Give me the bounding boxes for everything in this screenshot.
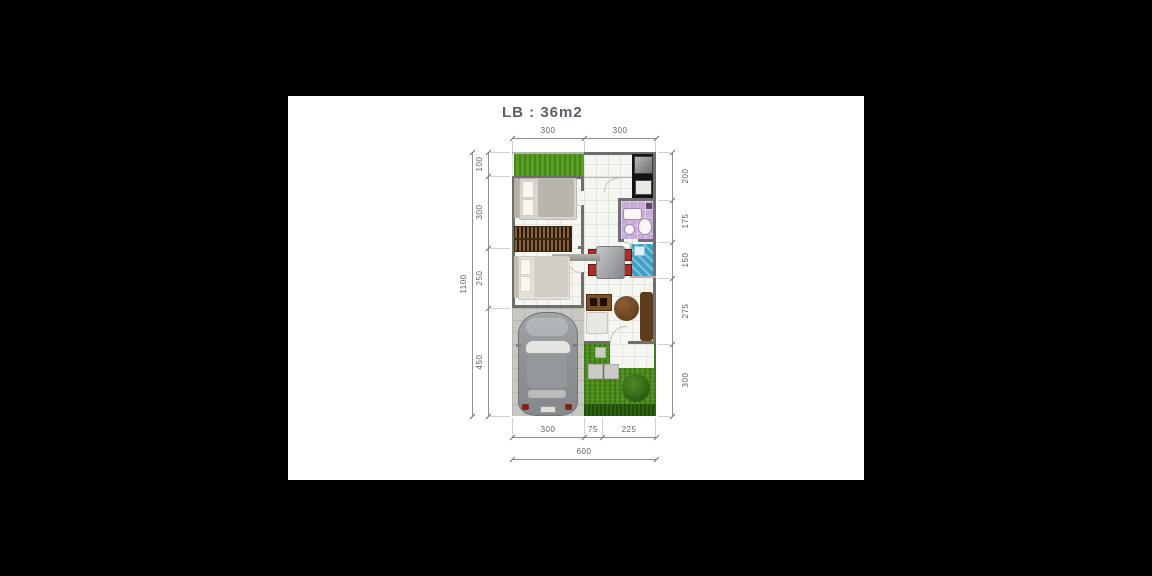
dining-table xyxy=(596,246,625,279)
wash-basin xyxy=(634,246,645,256)
bathtub xyxy=(623,208,642,220)
bed-pillow xyxy=(520,259,531,275)
dim-extension xyxy=(490,176,510,177)
dim-line-left-total xyxy=(472,152,473,416)
wall xyxy=(581,179,584,191)
dim-right-3: 150 xyxy=(681,240,691,280)
dim-left-1: 100 xyxy=(475,144,485,184)
dim-extension xyxy=(658,278,670,279)
dim-line-bottom-total xyxy=(512,459,656,460)
dim-top-2: 300 xyxy=(592,126,648,136)
side-bench xyxy=(640,292,653,341)
page-title: LB : 36m2 xyxy=(502,104,662,121)
stove xyxy=(635,180,652,195)
dim-top-1: 300 xyxy=(520,126,576,136)
shower-fitting xyxy=(646,203,652,209)
dim-extension xyxy=(655,141,656,152)
car-windshield xyxy=(525,340,571,354)
stepping-stone xyxy=(588,364,603,379)
dim-right-1: 200 xyxy=(681,156,691,196)
toilet xyxy=(638,218,652,235)
wall xyxy=(512,305,584,308)
dim-tick xyxy=(670,414,676,420)
bed-blanket xyxy=(538,179,574,217)
dim-left-2: 300 xyxy=(475,192,485,232)
wardrobe-slats xyxy=(514,226,572,239)
dim-extension xyxy=(512,418,513,437)
car-mirror xyxy=(516,344,521,347)
dim-right-5: 300 xyxy=(681,360,691,400)
garden-grass xyxy=(514,154,584,176)
wall xyxy=(630,276,656,278)
car-tail-light xyxy=(522,404,529,410)
dim-extension xyxy=(658,242,670,243)
dim-tick xyxy=(654,457,660,463)
car-mirror xyxy=(573,344,578,347)
stepping-stone xyxy=(604,364,619,379)
dim-extension xyxy=(490,152,510,153)
wall xyxy=(653,152,656,344)
floor-plan-sheet: LB : 36m2 300 300 300 75 225 600 1100 10… xyxy=(288,96,864,480)
dim-extension xyxy=(512,141,513,152)
dim-extension xyxy=(658,416,670,417)
dim-right-4: 275 xyxy=(681,291,691,331)
wardrobe-slats xyxy=(514,239,572,252)
bed-pillow xyxy=(520,276,531,292)
dim-bottom-total: 600 xyxy=(556,447,612,457)
dim-extension xyxy=(490,308,510,309)
round-chair xyxy=(614,296,639,321)
wall xyxy=(581,272,584,308)
dim-line-left xyxy=(488,152,489,416)
dim-bottom-1: 300 xyxy=(520,425,576,435)
sink xyxy=(624,224,635,235)
cabinet-drawer xyxy=(590,298,597,306)
cabinet-drawer xyxy=(600,298,607,306)
screenshot-root: { "title": "LB : 36m2", "dimensions": { … xyxy=(0,0,1152,576)
wall xyxy=(638,239,656,242)
dim-extension xyxy=(658,152,670,153)
refrigerator xyxy=(634,156,653,174)
car xyxy=(518,312,576,414)
bed-pillow xyxy=(522,199,534,216)
dim-left-total: 1100 xyxy=(459,260,469,308)
car-roof xyxy=(527,354,567,388)
dim-line-right xyxy=(672,152,673,416)
dim-extension xyxy=(584,141,585,152)
dim-extension xyxy=(490,416,510,417)
wall xyxy=(584,177,632,178)
dim-bottom-3: 225 xyxy=(601,425,657,435)
dim-extension xyxy=(658,200,670,201)
dim-tick xyxy=(470,414,476,420)
bed-blanket xyxy=(534,257,568,297)
sofa xyxy=(586,312,608,334)
wall xyxy=(581,205,584,258)
dim-left-4: 450 xyxy=(475,342,485,382)
car-license-plate xyxy=(540,406,556,413)
wall xyxy=(584,341,610,344)
car-hood xyxy=(526,318,568,336)
floor-plan xyxy=(512,152,656,416)
stepping-stone xyxy=(595,347,606,358)
bush xyxy=(622,374,650,402)
dim-extension xyxy=(658,344,670,345)
wall xyxy=(512,152,584,154)
dim-left-3: 250 xyxy=(475,258,485,298)
wall xyxy=(628,341,656,344)
dim-extension xyxy=(490,248,510,249)
hedge xyxy=(584,404,656,416)
bed-pillow xyxy=(522,181,534,198)
car-rear-window xyxy=(528,390,566,398)
dim-right-2: 175 xyxy=(681,201,691,241)
car-tail-light xyxy=(565,404,572,410)
